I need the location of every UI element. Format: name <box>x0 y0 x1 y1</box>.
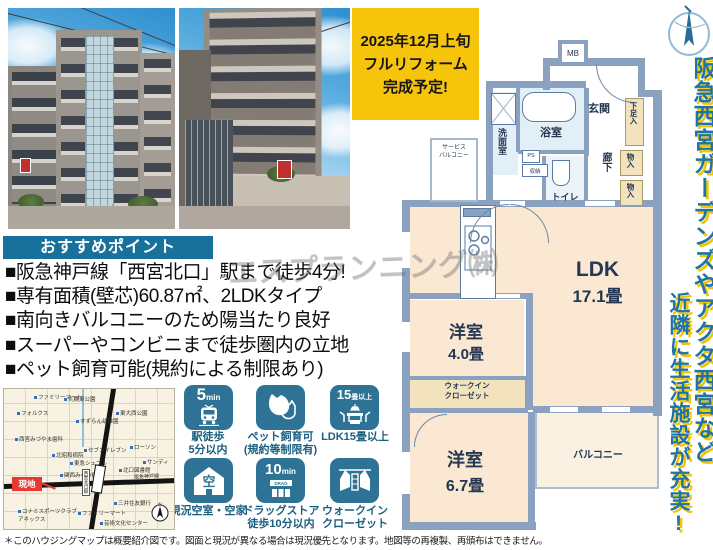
station-label: 西宮北口駅 <box>82 469 90 496</box>
floor-plan: MB PS 収納 サービス バルコニー <box>400 22 680 536</box>
house-icon: 空 <box>192 465 226 497</box>
wall-segment <box>528 412 535 524</box>
svg-text:空: 空 <box>202 474 215 489</box>
map-compass-icon: N <box>150 501 170 523</box>
map-poi: ファミリーマート <box>78 509 126 517</box>
building-wing <box>8 66 62 211</box>
recommend-bullets: ■阪急神戸線「西宮北口」駅まで徒歩4分! ■専有面積(壁芯)60.87㎡、2LD… <box>5 261 403 382</box>
ps-label: PS <box>523 153 539 159</box>
map-poi: すずらん幼稚園 <box>76 417 119 425</box>
svg-text:N: N <box>158 502 161 507</box>
map-poi: サンディ <box>143 458 169 466</box>
western2-size: 6.7畳 <box>408 472 522 496</box>
western1-label: 洋室 4.0畳 <box>414 318 518 364</box>
rouka-label: 廊下 <box>598 152 613 172</box>
train-icon <box>197 404 221 426</box>
map-poi: 西宮みづやま歯科 <box>15 435 63 443</box>
wall-segment <box>584 156 588 206</box>
wall-segment <box>486 81 586 88</box>
side-banner-line2: 近隣に生活施設が充実! <box>663 292 693 548</box>
signboard <box>20 158 31 173</box>
wall-segment <box>584 88 589 156</box>
badge-ldk15: 15畳以上 <box>330 385 379 430</box>
badge-wic <box>330 458 379 503</box>
wall-segment <box>408 408 528 413</box>
badge-station-walk: 5min <box>184 385 233 430</box>
balcony-label: バルコニー <box>548 446 648 461</box>
wall-segment <box>402 522 536 530</box>
map-poi: フォルクス <box>17 409 48 417</box>
sofa-table-icon <box>337 404 373 426</box>
shuno-label: 収納 <box>523 167 547 175</box>
badge-15jo-text: 15畳以上 <box>337 389 372 404</box>
storage-box: 収納 <box>522 164 548 177</box>
road <box>179 206 350 229</box>
wash-label: 洗面室 <box>496 128 509 155</box>
service-balcony: サービス バルコニー <box>430 138 478 202</box>
area-map: 西宮北口駅 阪急神戸線 現地 ファミリーマート 丸橋東公園 フォルクス すずらん… <box>3 388 175 530</box>
glass-block-corner <box>86 36 113 212</box>
ldk-label: LDK 17.1畳 <box>550 258 645 307</box>
toilet-fixture <box>552 160 570 186</box>
badge-10min-text: 10min <box>265 464 296 478</box>
gate-grille <box>185 120 233 210</box>
recommend-header: おすすめポイント <box>3 236 213 259</box>
store-icon: DRAG <box>267 478 295 498</box>
ldk-name: LDK <box>550 258 645 282</box>
building-photo-right <box>179 8 350 229</box>
road <box>8 206 175 229</box>
rail-line-label: 阪急神戸線 <box>134 472 159 480</box>
map-poi: 芸術文化センター <box>100 519 148 527</box>
bath-label: 浴室 <box>526 124 576 140</box>
map-poi: 東大西公園 <box>116 409 148 417</box>
monoire-label: 物入 <box>625 153 636 168</box>
map-poi: セブンイレブン <box>84 446 127 454</box>
pets-icon <box>264 391 298 425</box>
station-box <box>91 464 106 493</box>
wic-label: ウォークイン クローゼット <box>412 381 522 401</box>
bullet-item: ■ペット飼育可能(規約による制限あり) <box>5 358 403 382</box>
bullet-item: ■スーパーやコンビニまで徒歩圏内の立地 <box>5 334 403 358</box>
building-side <box>140 53 175 213</box>
map-poi: 三井住友銀行 <box>114 499 151 507</box>
washer-space <box>491 93 516 125</box>
building-photo-left <box>8 8 175 229</box>
geta-label: 下足入 <box>628 102 639 125</box>
wall-segment <box>653 90 662 416</box>
badge-wic-label: ウォークインクローゼット <box>305 505 405 530</box>
western2-name: 洋室 <box>408 446 522 472</box>
wic-line2: クローゼット <box>445 391 490 400</box>
map-poi: 北昭和病院 <box>52 451 84 459</box>
wall-segment <box>516 88 520 152</box>
base-wall <box>233 176 350 206</box>
service-balcony-label1: サービス <box>442 145 466 151</box>
map-poi: ローソン <box>130 443 156 451</box>
bathtub <box>522 92 576 122</box>
badge-vacant: 空 <box>184 458 233 503</box>
door-arc <box>596 64 635 103</box>
western1-name: 洋室 <box>414 318 518 343</box>
genchi-marker: 現地 <box>12 477 42 491</box>
western2-label: 洋室 6.7畳 <box>408 446 522 496</box>
badge-ldk15-label: LDK15畳以上 <box>305 431 405 444</box>
compass-icon <box>665 2 713 60</box>
svg-text:DRAG: DRAG <box>274 481 288 486</box>
monoire-label: 物入 <box>625 183 636 198</box>
pipe-space: PS <box>522 150 540 163</box>
toilet-label: トイレ <box>546 190 584 203</box>
wall-segment <box>543 58 550 90</box>
flyer-page: 2025年12月上旬 フルリフォーム 完成予定! おすすめポイント ■阪急神戸線… <box>0 0 713 550</box>
wic-line1: ウォークイン <box>445 381 490 390</box>
badge-drugstore: 10min DRAG <box>256 458 305 503</box>
map-poi: 丸橋東公園 <box>64 395 96 403</box>
bullet-item: ■南向きバルコニーのため陽当たり良好 <box>5 309 403 333</box>
meter-box: MB <box>558 40 588 66</box>
ldk-size: 17.1畳 <box>550 282 645 307</box>
bullet-item: ■専有面積(壁芯)60.87㎡、2LDKタイプ <box>5 285 403 309</box>
closet-icon <box>337 465 373 497</box>
map-poi: コナミスポーツクラブアネックス <box>18 507 80 523</box>
bullet-item: ■阪急神戸線「西宮北口」駅まで徒歩4分! <box>5 261 403 285</box>
western1-size: 4.0畳 <box>414 343 518 364</box>
wall-segment <box>408 376 528 380</box>
building-tower <box>56 30 142 216</box>
wall-segment <box>526 298 533 410</box>
signboard <box>277 160 292 179</box>
mb-label: MB <box>562 49 584 58</box>
badge-pets <box>256 385 305 430</box>
badge-5min-text: 5min <box>197 389 221 404</box>
service-balcony-label2: バルコニー <box>439 153 469 159</box>
